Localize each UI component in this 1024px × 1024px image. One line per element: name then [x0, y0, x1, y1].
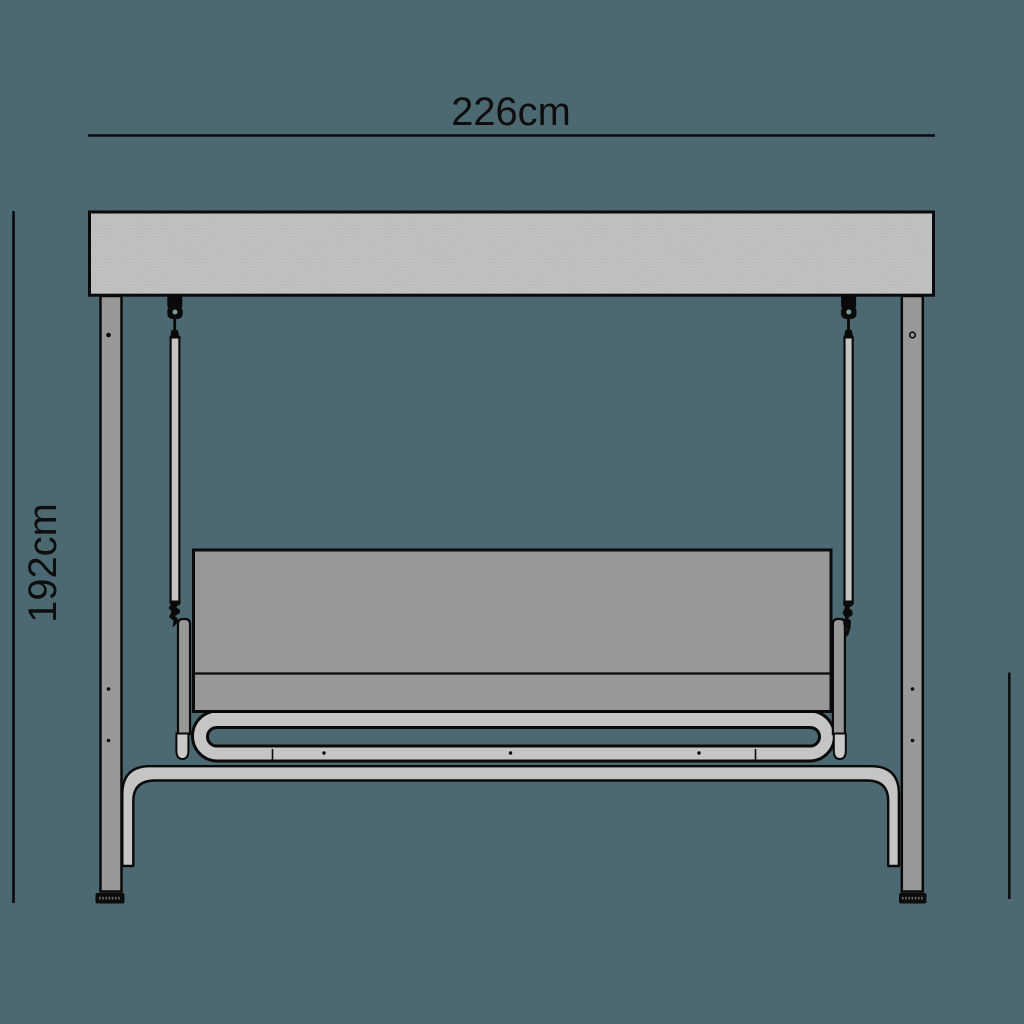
svg-text:226cm: 226cm — [451, 90, 570, 134]
svg-text:192cm: 192cm — [21, 503, 65, 622]
